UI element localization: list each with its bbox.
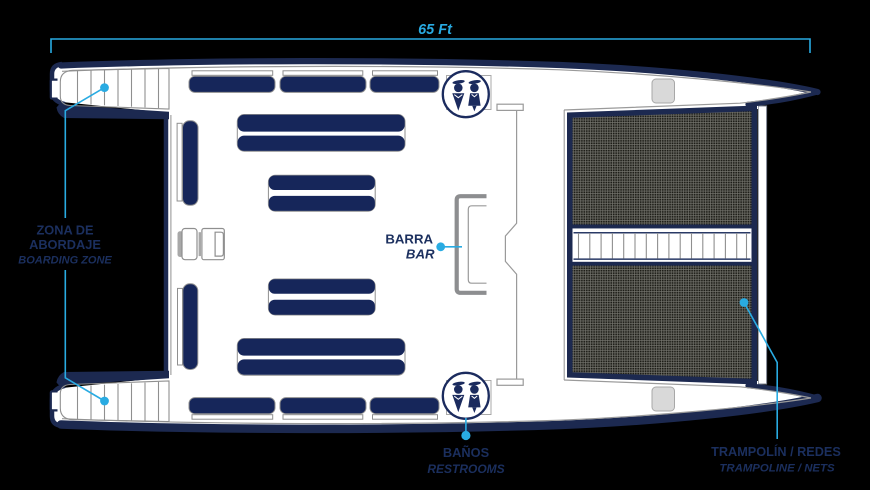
svg-text:BOARDING ZONE: BOARDING ZONE: [18, 255, 112, 267]
svg-text:BARRA: BARRA: [385, 232, 433, 247]
svg-text:RESTROOMS: RESTROOMS: [427, 462, 504, 476]
svg-text:ZONA DE: ZONA DE: [36, 223, 94, 238]
svg-text:BAÑOS: BAÑOS: [443, 445, 490, 460]
svg-text:TRAMPOLINE / NETS: TRAMPOLINE / NETS: [719, 463, 835, 475]
svg-text:65 Ft: 65 Ft: [418, 22, 453, 38]
svg-text:BAR: BAR: [406, 247, 435, 262]
svg-text:ABORDAJE: ABORDAJE: [29, 237, 101, 252]
svg-text:TRAMPOLÍN / REDES: TRAMPOLÍN / REDES: [711, 444, 841, 459]
